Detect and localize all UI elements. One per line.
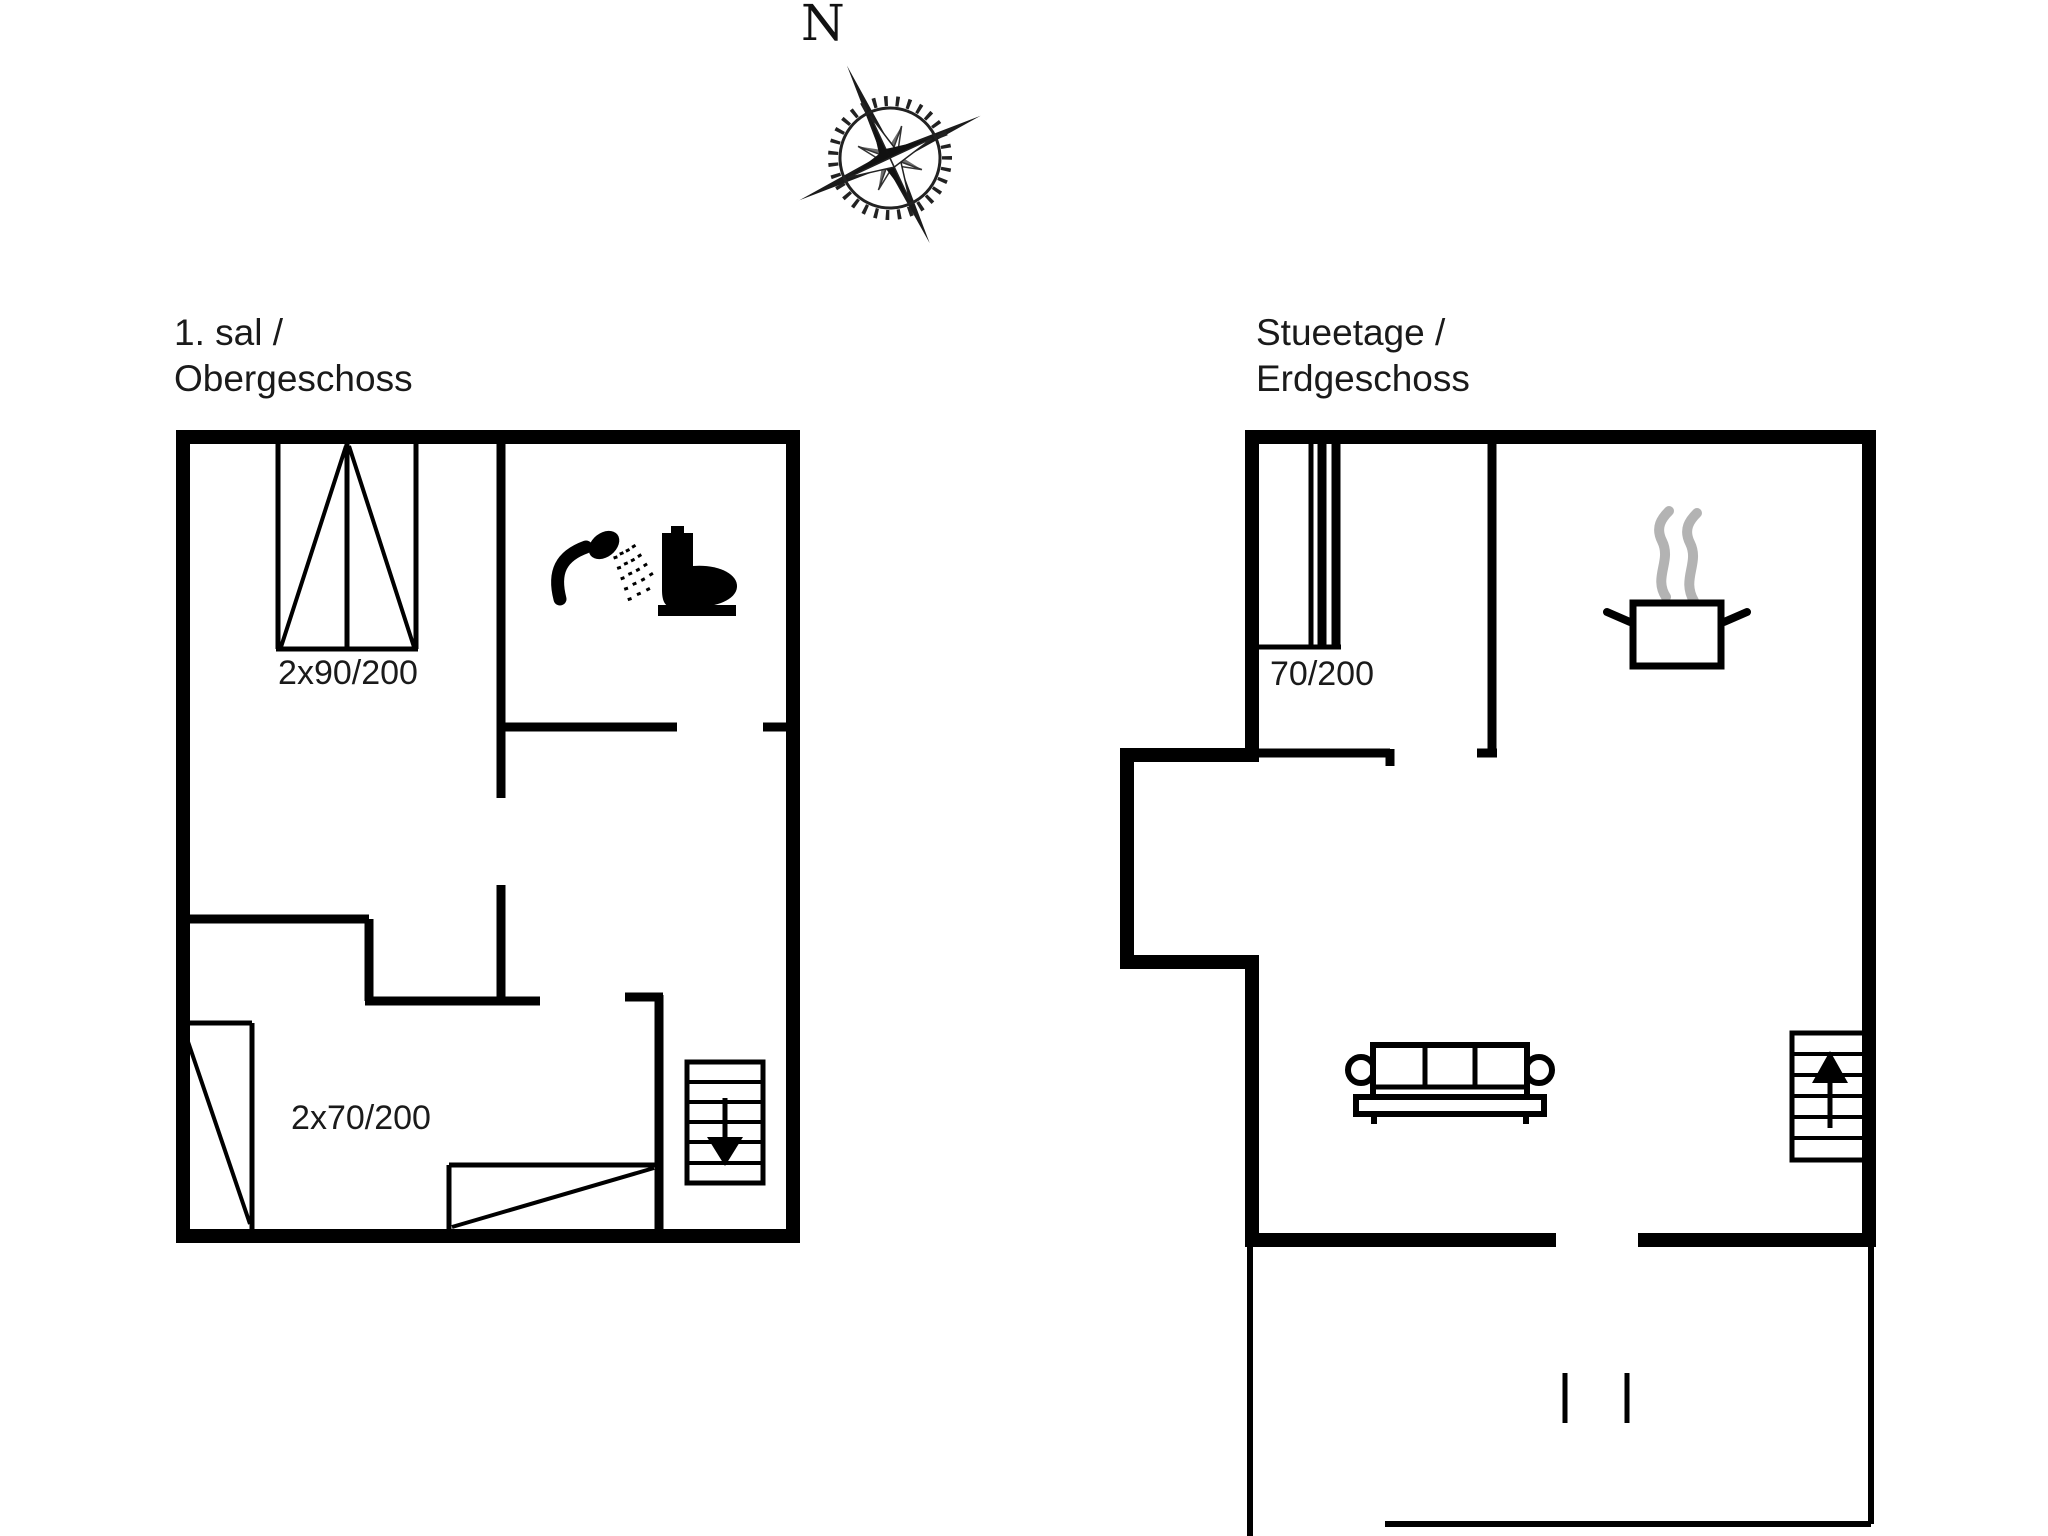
floor-plan-page: N 1. sal / Obergeschoss Stueetage / Erdg… — [0, 0, 2048, 1536]
upper-outer-wall — [183, 437, 793, 1236]
door-icon — [1259, 444, 1341, 647]
cooking-pot-icon — [1607, 511, 1747, 666]
terrace-step-marks — [1565, 1373, 1627, 1423]
sofa-icon — [1348, 1045, 1552, 1124]
ground-interior-walls — [1259, 444, 1497, 766]
window-icon — [184, 1023, 252, 1231]
terrace-outline — [1250, 1247, 1871, 1536]
window-icon — [276, 444, 418, 649]
toilet-icon — [658, 526, 737, 616]
upper-floor-plan — [183, 437, 793, 1236]
compass-rose-icon — [756, 23, 1020, 285]
stairs-up-icon — [1792, 1033, 1865, 1160]
stairs-down-icon — [687, 1062, 763, 1183]
window-icon — [449, 1165, 656, 1231]
ground-floor-plan — [1127, 437, 1871, 1536]
ground-outer-wall — [1127, 437, 1869, 1240]
steam-icon — [1659, 511, 1697, 601]
plan-drawing — [0, 0, 2048, 1536]
shower-icon — [558, 525, 656, 606]
